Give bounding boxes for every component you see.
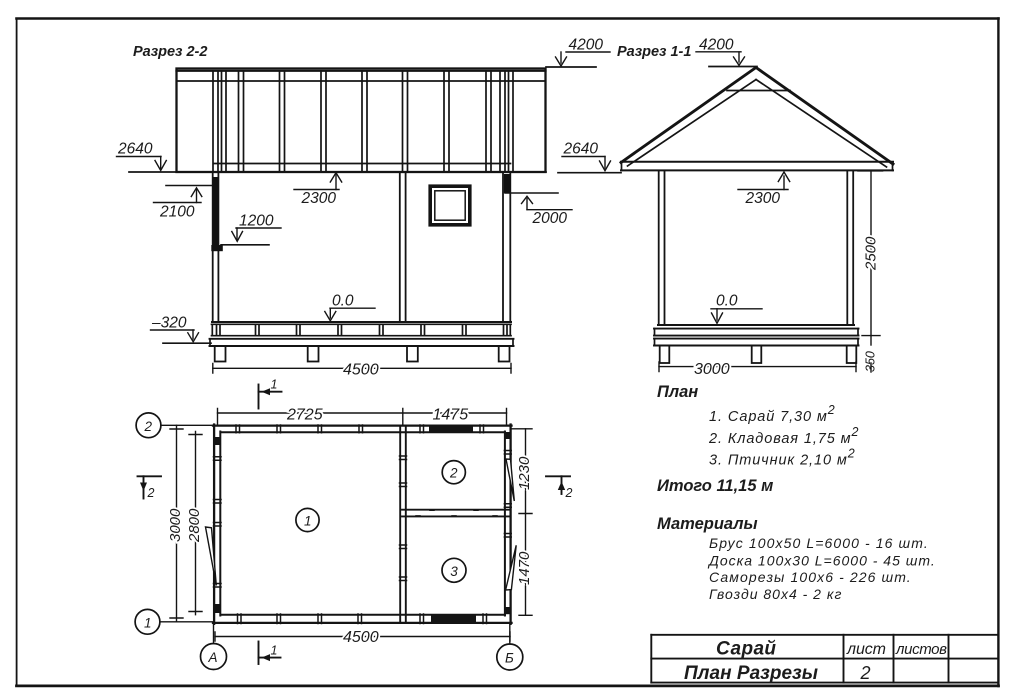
svg-text:3000: 3000 <box>167 508 184 542</box>
svg-text:2725: 2725 <box>286 407 323 424</box>
svg-text:1: 1 <box>271 644 278 658</box>
svg-text:Разрез 1-1: Разрез 1-1 <box>617 44 691 60</box>
svg-text:1200: 1200 <box>239 213 274 230</box>
svg-text:2000: 2000 <box>532 210 568 227</box>
svg-text:листов: листов <box>895 641 947 658</box>
svg-text:Сарай: Сарай <box>716 639 776 660</box>
svg-text:4200: 4200 <box>569 37 604 54</box>
svg-text:2: 2 <box>565 486 573 500</box>
svg-text:2300: 2300 <box>301 190 337 207</box>
svg-text:4200: 4200 <box>699 37 734 54</box>
svg-text:–320: –320 <box>151 315 187 332</box>
svg-text:Брус 100х50 L=6000 - 16 шт.: Брус 100х50 L=6000 - 16 шт. <box>709 535 929 551</box>
svg-text:1470: 1470 <box>516 551 533 585</box>
svg-text:Итого 11,15 м: Итого 11,15 м <box>657 477 773 495</box>
svg-text:1230: 1230 <box>516 456 533 490</box>
svg-text:2100: 2100 <box>159 204 195 221</box>
svg-text:Материалы: Материалы <box>657 515 758 533</box>
svg-text:1: 1 <box>144 615 152 630</box>
svg-text:Разрез 2-2: Разрез 2-2 <box>133 44 207 60</box>
svg-text:2800: 2800 <box>186 508 203 543</box>
svg-text:3: 3 <box>450 564 458 579</box>
svg-text:0.0: 0.0 <box>716 293 738 310</box>
svg-text:2500: 2500 <box>863 236 880 271</box>
svg-text:План Разрезы: План Разрезы <box>684 663 818 684</box>
svg-text:Б: Б <box>505 651 514 666</box>
svg-text:4500: 4500 <box>343 629 379 646</box>
svg-text:2640: 2640 <box>563 141 599 158</box>
svg-text:2640: 2640 <box>117 141 153 158</box>
svg-text:1475: 1475 <box>433 407 469 424</box>
svg-text:План: План <box>657 383 698 401</box>
svg-text:1: 1 <box>271 378 278 392</box>
svg-text:4500: 4500 <box>343 362 379 379</box>
svg-text:Доска 100х30 L=6000 - 45 шт.: Доска 100х30 L=6000 - 45 шт. <box>707 553 936 569</box>
svg-text:А: А <box>208 650 218 665</box>
svg-text:350: 350 <box>864 351 878 372</box>
svg-text:лист: лист <box>846 641 886 658</box>
svg-text:Гвозди 80х4 - 2 кг: Гвозди 80х4 - 2 кг <box>709 586 842 602</box>
svg-text:2300: 2300 <box>745 190 781 207</box>
svg-text:3000: 3000 <box>694 361 730 378</box>
svg-text:2: 2 <box>147 486 155 500</box>
svg-text:0.0: 0.0 <box>332 293 354 310</box>
svg-text:2: 2 <box>449 466 458 481</box>
svg-text:2: 2 <box>144 419 153 434</box>
svg-text:Саморезы 100х6 - 226 шт.: Саморезы 100х6 - 226 шт. <box>709 569 912 585</box>
svg-text:1: 1 <box>304 514 312 529</box>
svg-text:2: 2 <box>860 663 871 683</box>
